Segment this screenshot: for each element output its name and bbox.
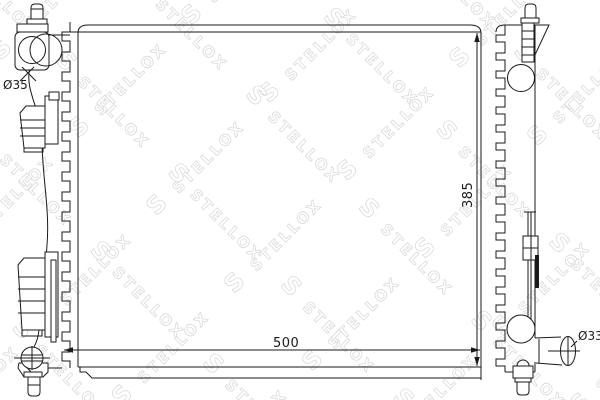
upper-pipe-port	[508, 65, 535, 92]
drain-plug-right-flange	[515, 378, 531, 382]
mounting-bracket-lower	[18, 252, 58, 342]
bracket-upper-block	[20, 106, 45, 148]
drain-plug-left	[28, 377, 40, 396]
bracket-lower-rod	[51, 260, 56, 342]
drain-plug-left-flange	[24, 372, 42, 377]
bracket-lower-block	[18, 258, 45, 330]
stellox-watermark: S STELLOX S STELLOX S STELLOX S STELLOX …	[0, 0, 600, 400]
bracket-upper-lip	[24, 148, 43, 152]
dimension-width-label: 500	[273, 336, 299, 351]
bracket-upper-tab	[49, 92, 59, 100]
radiator-technical-drawing: S STELLOX S STELLOX S STELLOX S STELLOX …	[0, 0, 600, 400]
inlet-housing-plate	[17, 24, 48, 32]
filler-cap-left	[31, 4, 43, 19]
lower-pipe-port	[507, 315, 535, 343]
filler-cap-right-flange	[521, 18, 539, 23]
inlet-housing	[15, 32, 49, 70]
dimension-height-label: 385	[461, 182, 476, 208]
filler-neck	[522, 23, 534, 62]
outlet-diameter-label: Ø33	[578, 329, 600, 343]
outlet-pipe	[535, 336, 580, 366]
filler-cap-left-flange	[27, 19, 47, 24]
drain-plug-right-mount	[513, 366, 533, 378]
side-bracket-pad	[535, 255, 539, 288]
drawing-canvas: S STELLOX S STELLOX S STELLOX S STELLOX …	[0, 0, 600, 400]
filler-cap-right	[525, 4, 536, 18]
inlet-diameter-label: Ø35	[3, 78, 28, 92]
mounting-bracket-upper	[20, 92, 59, 152]
bracket-upper-plate	[45, 96, 58, 144]
drain-plug-right-body	[517, 382, 529, 395]
